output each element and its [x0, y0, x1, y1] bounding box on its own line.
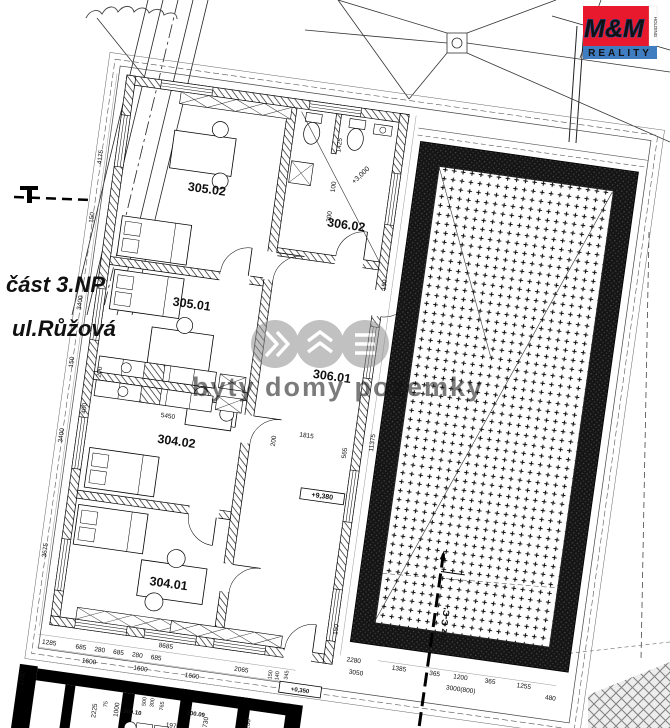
floor-part-label: část 3.NP [6, 272, 105, 297]
plan-label: 140 [274, 671, 281, 681]
plan-label: 75 [103, 701, 110, 708]
plan-label: 1815 [299, 432, 315, 441]
plan-label: 1600 [184, 672, 200, 681]
plan-label: 304.02 [157, 432, 197, 451]
plan-label: 8685 [158, 642, 174, 651]
plan-label: 1970 [165, 722, 181, 728]
plan-label: 1600 [133, 665, 149, 674]
plan-label: 3400 [57, 427, 66, 443]
plan-label: 765 [159, 701, 166, 711]
plan-label: 150 [267, 670, 274, 680]
tree-outline [86, 6, 177, 19]
logo-mm-text: M&M [584, 15, 645, 43]
plan-label: 2225 [90, 703, 99, 719]
watermark-text: byty domy pozemky [192, 372, 484, 402]
plan-label: 150 [68, 356, 76, 368]
plan-label: +3,000 [351, 166, 371, 186]
plan-label: 2280 [346, 656, 362, 665]
plan-label: 2065 [234, 666, 250, 675]
plan-label: 3400 [76, 295, 85, 311]
plan-label: 685 [113, 649, 125, 657]
plan-label: 365 [429, 670, 441, 678]
plan-label: 1255 [516, 682, 532, 691]
plan-label: 730 [202, 716, 210, 728]
plan-label: 1600 [81, 657, 97, 666]
boundary-dashed-line [641, 232, 649, 660]
plan-label: 5450 [160, 412, 176, 421]
furniture [66, 109, 274, 618]
plan-label: 200 [270, 435, 278, 447]
floorplan-canvas: 305.02306.02305.01306.01304.02304.01300.… [0, 0, 670, 728]
plan-label: 500 [141, 697, 148, 707]
street-label: ul.Růžová [12, 316, 116, 341]
site-boundary-line [97, 18, 146, 79]
lower-floor-walls [6, 664, 303, 728]
section-cut-marker [14, 186, 92, 203]
plan-label: 3050 [348, 669, 364, 678]
plan-label: 1425 [335, 137, 344, 153]
logo-side-text: HOLDING [653, 17, 658, 38]
plan-label: 345 [283, 670, 290, 680]
plan-label: 3000(800) [446, 684, 476, 695]
plan-label: 565 [341, 447, 349, 459]
plan-label: 300 [149, 698, 156, 708]
plan-label: 365 [484, 678, 496, 686]
plan-label: 11375 [368, 433, 377, 452]
plan-label: 280 [94, 646, 106, 654]
plan-label: 150 [88, 211, 96, 223]
mm-reality-logo: M&M HOLDING REALITY [583, 6, 658, 59]
plan-label: 1385 [391, 665, 407, 674]
plan-label: 1285 [42, 639, 58, 648]
plan-label: 100 [330, 181, 338, 193]
plan-label: 685 [75, 643, 87, 651]
plan-label: 3675 [41, 542, 50, 558]
plan-label: 1230 [244, 718, 253, 728]
floorplan-drawing: 305.02306.02305.01306.01304.02304.01300.… [0, 0, 670, 728]
plan-label: 150 [332, 623, 340, 635]
plan-label: 4175 [96, 149, 105, 165]
plan-label: 150 [381, 279, 389, 291]
logo-reality-text: REALITY [588, 48, 652, 59]
plan-label: 1200 [453, 673, 469, 682]
plan-label: 685 [150, 654, 162, 662]
plan-label: 280 [131, 651, 143, 659]
plan-label: 480 [544, 694, 556, 702]
lower-floor-fixtures [123, 721, 169, 728]
ground-hatch-area [588, 662, 670, 728]
